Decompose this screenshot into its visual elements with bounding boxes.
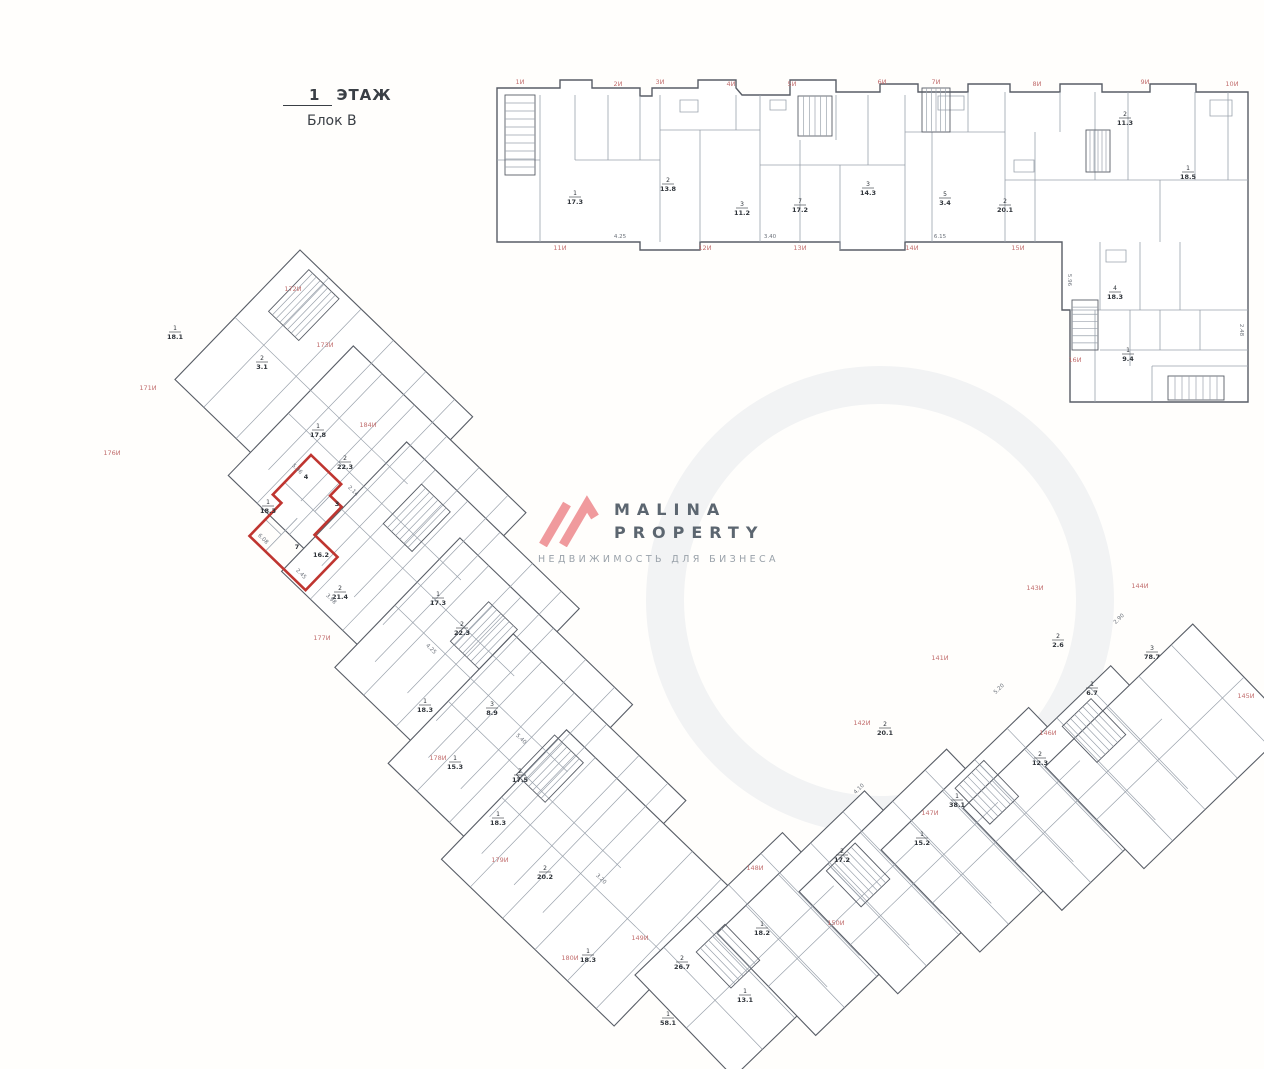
floor-title: 1 ЭТАЖ xyxy=(283,86,392,106)
floor-number: 1 xyxy=(283,86,332,106)
axis-label: 12И xyxy=(698,244,711,252)
axis-label: 13И xyxy=(793,244,806,252)
axis-label: 9И xyxy=(1141,78,1150,86)
room-label: 7 xyxy=(295,543,300,551)
axis-label: 172И xyxy=(284,285,301,293)
axis-label: 146И xyxy=(1039,729,1056,737)
axis-label: 149И xyxy=(631,934,648,942)
floorplan-page: 117.3213.8311.2717.2314.353.4220.1211.31… xyxy=(0,0,1264,1069)
axis-label: 176И xyxy=(103,449,120,457)
axis-label: 14И xyxy=(905,244,918,252)
block-title: Блок В xyxy=(307,113,392,129)
axis-label: 171И xyxy=(139,384,156,392)
axis-label: 16И xyxy=(1068,356,1081,364)
axis-label: 10И xyxy=(1225,80,1238,88)
axis-label: 141И xyxy=(931,654,948,662)
axis-label: 11И xyxy=(553,244,566,252)
axis-label: 145И xyxy=(1237,692,1254,700)
floor-word: ЭТАЖ xyxy=(336,86,391,104)
malina-property-logo: MALINA PROPERTY НЕДВИЖИМОСТЬ ДЛЯ БИЗНЕСА xyxy=(538,495,753,565)
axis-label: 3И xyxy=(656,78,665,86)
axis-label: 147И xyxy=(921,809,938,817)
dimension-label: 6.15 xyxy=(934,234,947,240)
logo-line-1: MALINA xyxy=(614,498,764,521)
axis-label: 148И xyxy=(746,864,763,872)
logo-tagline: НЕДВИЖИМОСТЬ ДЛЯ БИЗНЕСА xyxy=(538,554,753,565)
axis-label: 4И xyxy=(727,80,736,88)
axis-label: 150И xyxy=(827,919,844,927)
room-label: 16.2 xyxy=(313,551,329,559)
axis-label: 8И xyxy=(1033,80,1042,88)
axis-label: 173И xyxy=(316,341,333,349)
dimension-label: 2.90 xyxy=(1113,613,1126,626)
logo-m-icon xyxy=(538,495,602,547)
axis-label: 142И xyxy=(853,719,870,727)
axis-label: 15И xyxy=(1011,244,1024,252)
axis-label: 7И xyxy=(932,78,941,86)
room-label: 22.6 xyxy=(1052,633,1064,649)
axis-label: 5И xyxy=(788,80,797,88)
dimension-label: 4.25 xyxy=(614,234,627,240)
axis-label: 2И xyxy=(614,80,623,88)
axis-label: 143И xyxy=(1026,584,1043,592)
dimension-label: 2.48 xyxy=(1238,324,1244,337)
dimension-label: 5.96 xyxy=(1066,274,1072,287)
top-building xyxy=(497,80,1248,402)
axis-label: 144И xyxy=(1131,582,1148,590)
plan-title: 1 ЭТАЖ Блок В xyxy=(283,86,392,129)
axis-label: 177И xyxy=(313,634,330,642)
room-label: 4 xyxy=(304,473,309,481)
room-label: 378.7 xyxy=(1144,645,1160,661)
axis-label: 179И xyxy=(491,856,508,864)
axis-label: 1И xyxy=(516,78,525,86)
logo-line-2: PROPERTY xyxy=(614,521,764,544)
axis-label: 184И xyxy=(359,421,376,429)
right-wing xyxy=(635,527,1264,1069)
dimension-label: 5.20 xyxy=(993,683,1006,696)
room-label: 220.1 xyxy=(877,721,894,737)
room-label: 118.1 xyxy=(167,325,184,341)
room-label: 3 xyxy=(335,500,340,508)
axis-label: 178И xyxy=(429,754,446,762)
dimension-label: 3.40 xyxy=(764,234,777,240)
axis-label: 6И xyxy=(878,78,887,86)
axis-label: 180И xyxy=(561,954,578,962)
